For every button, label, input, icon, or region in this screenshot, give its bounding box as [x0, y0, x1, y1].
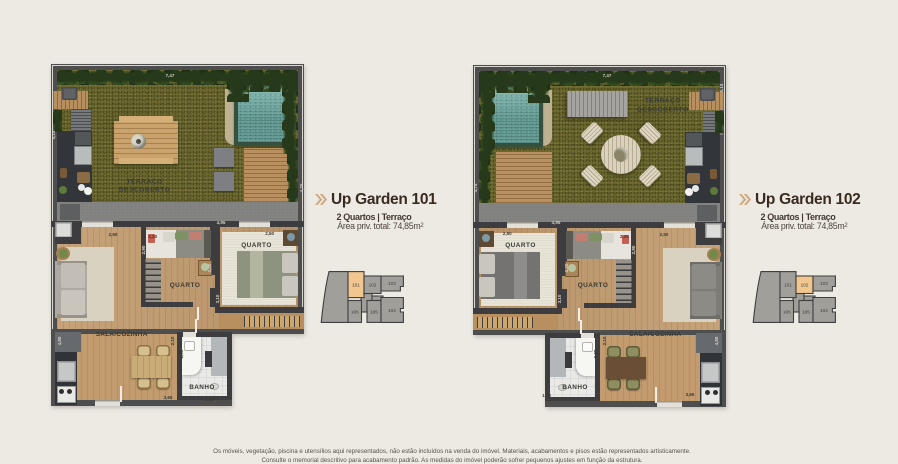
svg-text:102: 102 [801, 283, 809, 288]
svg-text:101: 101 [352, 283, 360, 288]
svg-text:105: 105 [802, 310, 810, 315]
svg-text:105: 105 [370, 310, 378, 315]
svg-text:102: 102 [369, 283, 377, 288]
svg-text:103: 103 [388, 281, 396, 286]
svg-text:104: 104 [388, 308, 396, 313]
svg-text:101: 101 [784, 283, 792, 288]
svg-text:104: 104 [820, 308, 828, 313]
svg-text:106: 106 [351, 310, 359, 315]
svg-text:106: 106 [783, 310, 791, 315]
svg-text:103: 103 [820, 281, 828, 286]
